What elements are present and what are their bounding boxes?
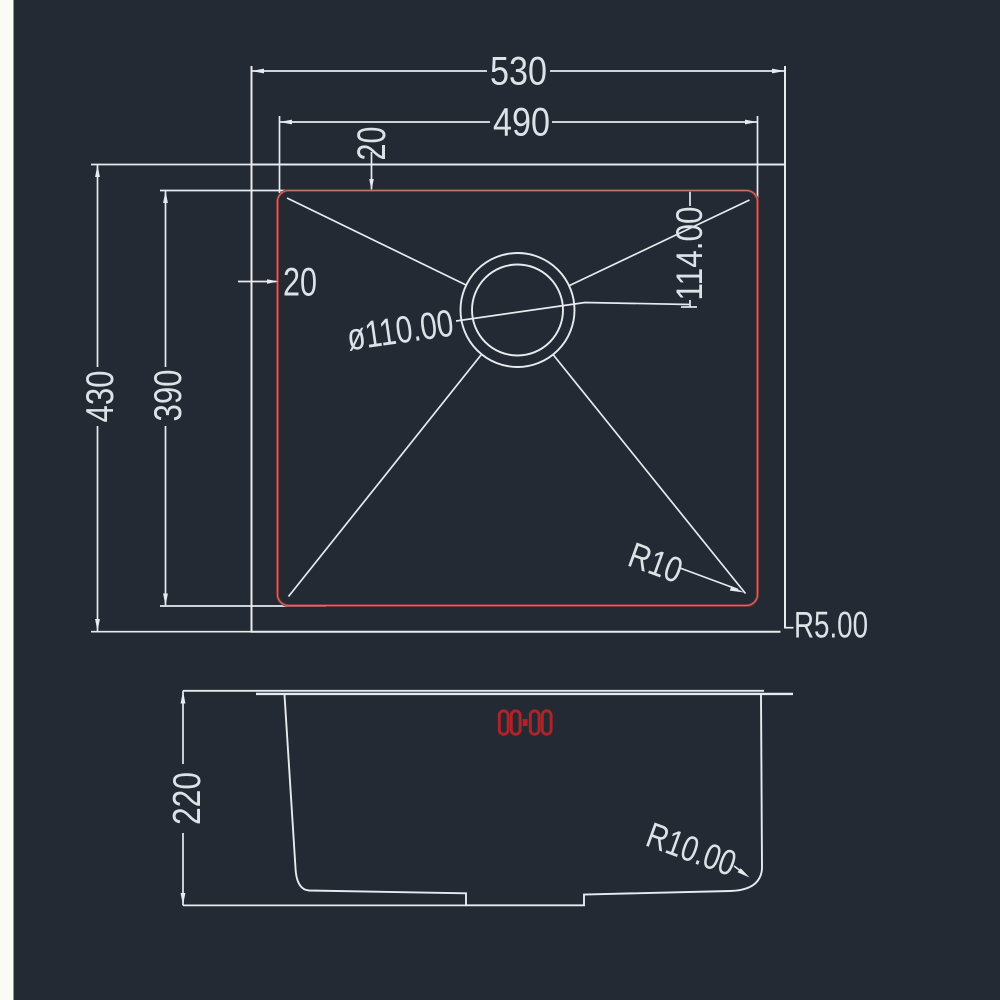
svg-text:220: 220 [166,772,209,825]
svg-text:390: 390 [147,370,190,422]
svg-text:530: 530 [490,50,547,94]
svg-text:430: 430 [79,371,122,423]
svg-text:R5.00: R5.00 [794,605,868,646]
svg-text:20: 20 [283,261,317,305]
svg-text:20: 20 [350,127,394,161]
svg-text:114.00: 114.00 [669,207,710,301]
svg-text:490: 490 [493,101,550,145]
